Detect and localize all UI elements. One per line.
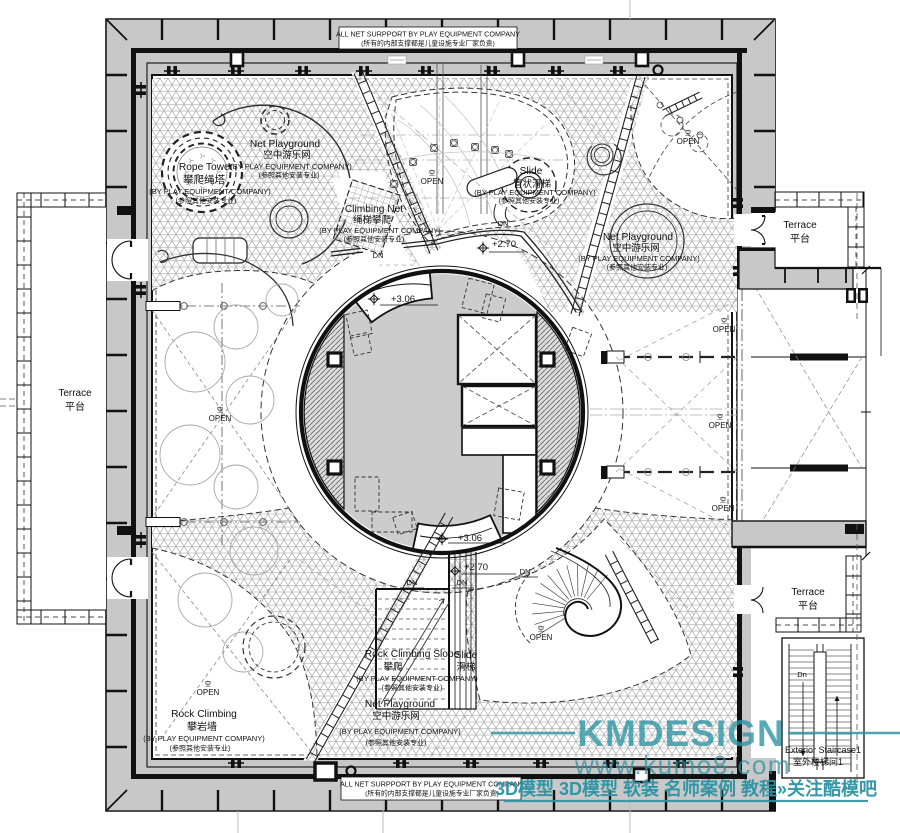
svg-text:OPEN: OPEN (421, 177, 444, 186)
svg-text:平台: 平台 (65, 400, 85, 413)
svg-text:OPEN: OPEN (530, 633, 553, 642)
svg-text:OPEN: OPEN (712, 504, 735, 513)
svg-text:Slide: Slide (455, 650, 478, 661)
svg-text:空中游乐网: 空中游乐网 (372, 710, 420, 722)
svg-text:DN: DN (457, 578, 468, 587)
svg-text:(参照其他安装专业): (参照其他安装专业) (259, 171, 320, 180)
svg-text:Exterior Staircase1: Exterior Staircase1 (785, 745, 861, 755)
svg-text:(BY PLAY EQUIPMENT COMPANY): (BY PLAY EQUIPMENT COMPANY) (356, 674, 478, 683)
svg-text:(参照其他安装专业): (参照其他安装专业) (366, 738, 427, 747)
svg-text:(参照其他安装专业): (参照其他安装专业) (382, 683, 443, 692)
svg-text:OPEN: OPEN (209, 414, 232, 423)
svg-text:(BY PLAY EQUIPMENT COMPANY): (BY PLAY EQUIPMENT COMPANY) (149, 187, 271, 196)
svg-text:(BY PLAY EQUIPMENT COMPANY): (BY PLAY EQUIPMENT COMPANY) (339, 727, 461, 736)
svg-text:KMDESIGN: KMDESIGN (577, 713, 784, 754)
svg-text:DN: DN (498, 219, 509, 228)
svg-text:Terrace: Terrace (791, 587, 825, 598)
svg-text:OPEN: OPEN (677, 137, 700, 146)
svg-text:绳梯攀爬: 绳梯攀爬 (353, 214, 392, 226)
svg-text:平台: 平台 (790, 232, 810, 245)
svg-text:DN: DN (407, 578, 418, 587)
svg-text:+3.06: +3.06 (458, 533, 482, 544)
svg-text:空: 空 (205, 679, 212, 688)
svg-text:+2.70: +2.70 (464, 562, 488, 573)
svg-text:Net Playground: Net Playground (603, 232, 674, 243)
svg-text:空: 空 (721, 316, 728, 325)
svg-text:(参照其他安装专业): (参照其他安装专业) (170, 744, 231, 753)
svg-text:空中游乐网: 空中游乐网 (263, 149, 311, 161)
svg-text:Rock Climbing Slope: Rock Climbing Slope (365, 649, 460, 660)
svg-text:空: 空 (429, 168, 436, 177)
svg-text:Net Playground: Net Playground (250, 139, 321, 150)
svg-text:OPEN: OPEN (709, 421, 732, 430)
svg-text:攀爬绳塔: 攀爬绳塔 (183, 173, 225, 186)
svg-text:空: 空 (538, 624, 545, 633)
svg-text:Terrace: Terrace (783, 220, 817, 231)
svg-text:(参照其他安装专业): (参照其他安装专业) (607, 263, 668, 272)
svg-text:Climbing Net: Climbing Net (345, 204, 403, 215)
svg-text:(BY PLAY EQUIPMENT COMPANY): (BY PLAY EQUIPMENT COMPANY) (230, 162, 352, 171)
svg-text:攀岩墙: 攀岩墙 (187, 720, 217, 733)
svg-text:Slide: Slide (520, 166, 543, 177)
svg-text:3D模型 3D模型 软装 名师案例 教程»关注酷模吧: 3D模型 3D模型 软装 名师案例 教程»关注酷模吧 (495, 778, 877, 799)
svg-text:空中游乐网: 空中游乐网 (612, 242, 660, 254)
svg-text:ALL NET SURPPORT BY PLAY EQUIP: ALL NET SURPPORT BY PLAY EQUIPMENT COMPA… (336, 30, 520, 39)
svg-text:Terrace: Terrace (58, 388, 92, 399)
svg-text:空: 空 (717, 412, 724, 421)
svg-text:+3.06: +3.06 (391, 294, 415, 305)
svg-text:OPEN: OPEN (713, 325, 736, 334)
svg-text:DN: DN (520, 567, 531, 576)
svg-text:Rock Climbing: Rock Climbing (171, 709, 237, 720)
svg-text:(BY PLAY EQUIPMENT COMPANY): (BY PLAY EQUIPMENT COMPANY) (143, 734, 265, 743)
svg-text:(BY PLAY EQUIPMENT COMPANY): (BY PLAY EQUIPMENT COMPANY) (578, 254, 700, 263)
svg-text:(BY PLAY EQUIPMENT COMPANY): (BY PLAY EQUIPMENT COMPANY) (319, 226, 441, 235)
svg-text:(参照其他安装专业): (参照其他安装专业) (176, 196, 237, 205)
svg-text:Dn: Dn (797, 670, 807, 679)
svg-text:(BY PLAY EQUIPMENT COMPANY): (BY PLAY EQUIPMENT COMPANY) (474, 188, 596, 197)
svg-text:DN: DN (373, 251, 384, 260)
svg-text:(所有的内部支撑都是儿童设施专业厂家负责): (所有的内部支撑都是儿童设施专业厂家负责) (365, 789, 499, 798)
svg-text:(参照其他安装专业): (参照其他安装专业) (344, 235, 405, 244)
svg-text:空: 空 (685, 128, 692, 137)
svg-text:室外楼梯间1: 室外楼梯间1 (793, 756, 843, 767)
svg-text:+2.70: +2.70 (492, 239, 516, 250)
svg-text:(参照其他安装专业): (参照其他安装专业) (499, 196, 560, 205)
svg-text:滑梯: 滑梯 (456, 661, 476, 673)
svg-text:OPEN: OPEN (197, 688, 220, 697)
svg-text:平台: 平台 (798, 599, 818, 612)
svg-text:空: 空 (720, 495, 727, 504)
svg-text:空: 空 (217, 405, 224, 414)
svg-text:Rope Tower: Rope Tower (179, 162, 234, 173)
svg-text:(所有的内部支撑都是儿童设施专业厂家负责): (所有的内部支撑都是儿童设施专业厂家负责) (361, 39, 495, 48)
svg-text:攀爬: 攀爬 (383, 661, 403, 673)
svg-text:www.kumo8.com: www.kumo8.com (574, 750, 791, 780)
